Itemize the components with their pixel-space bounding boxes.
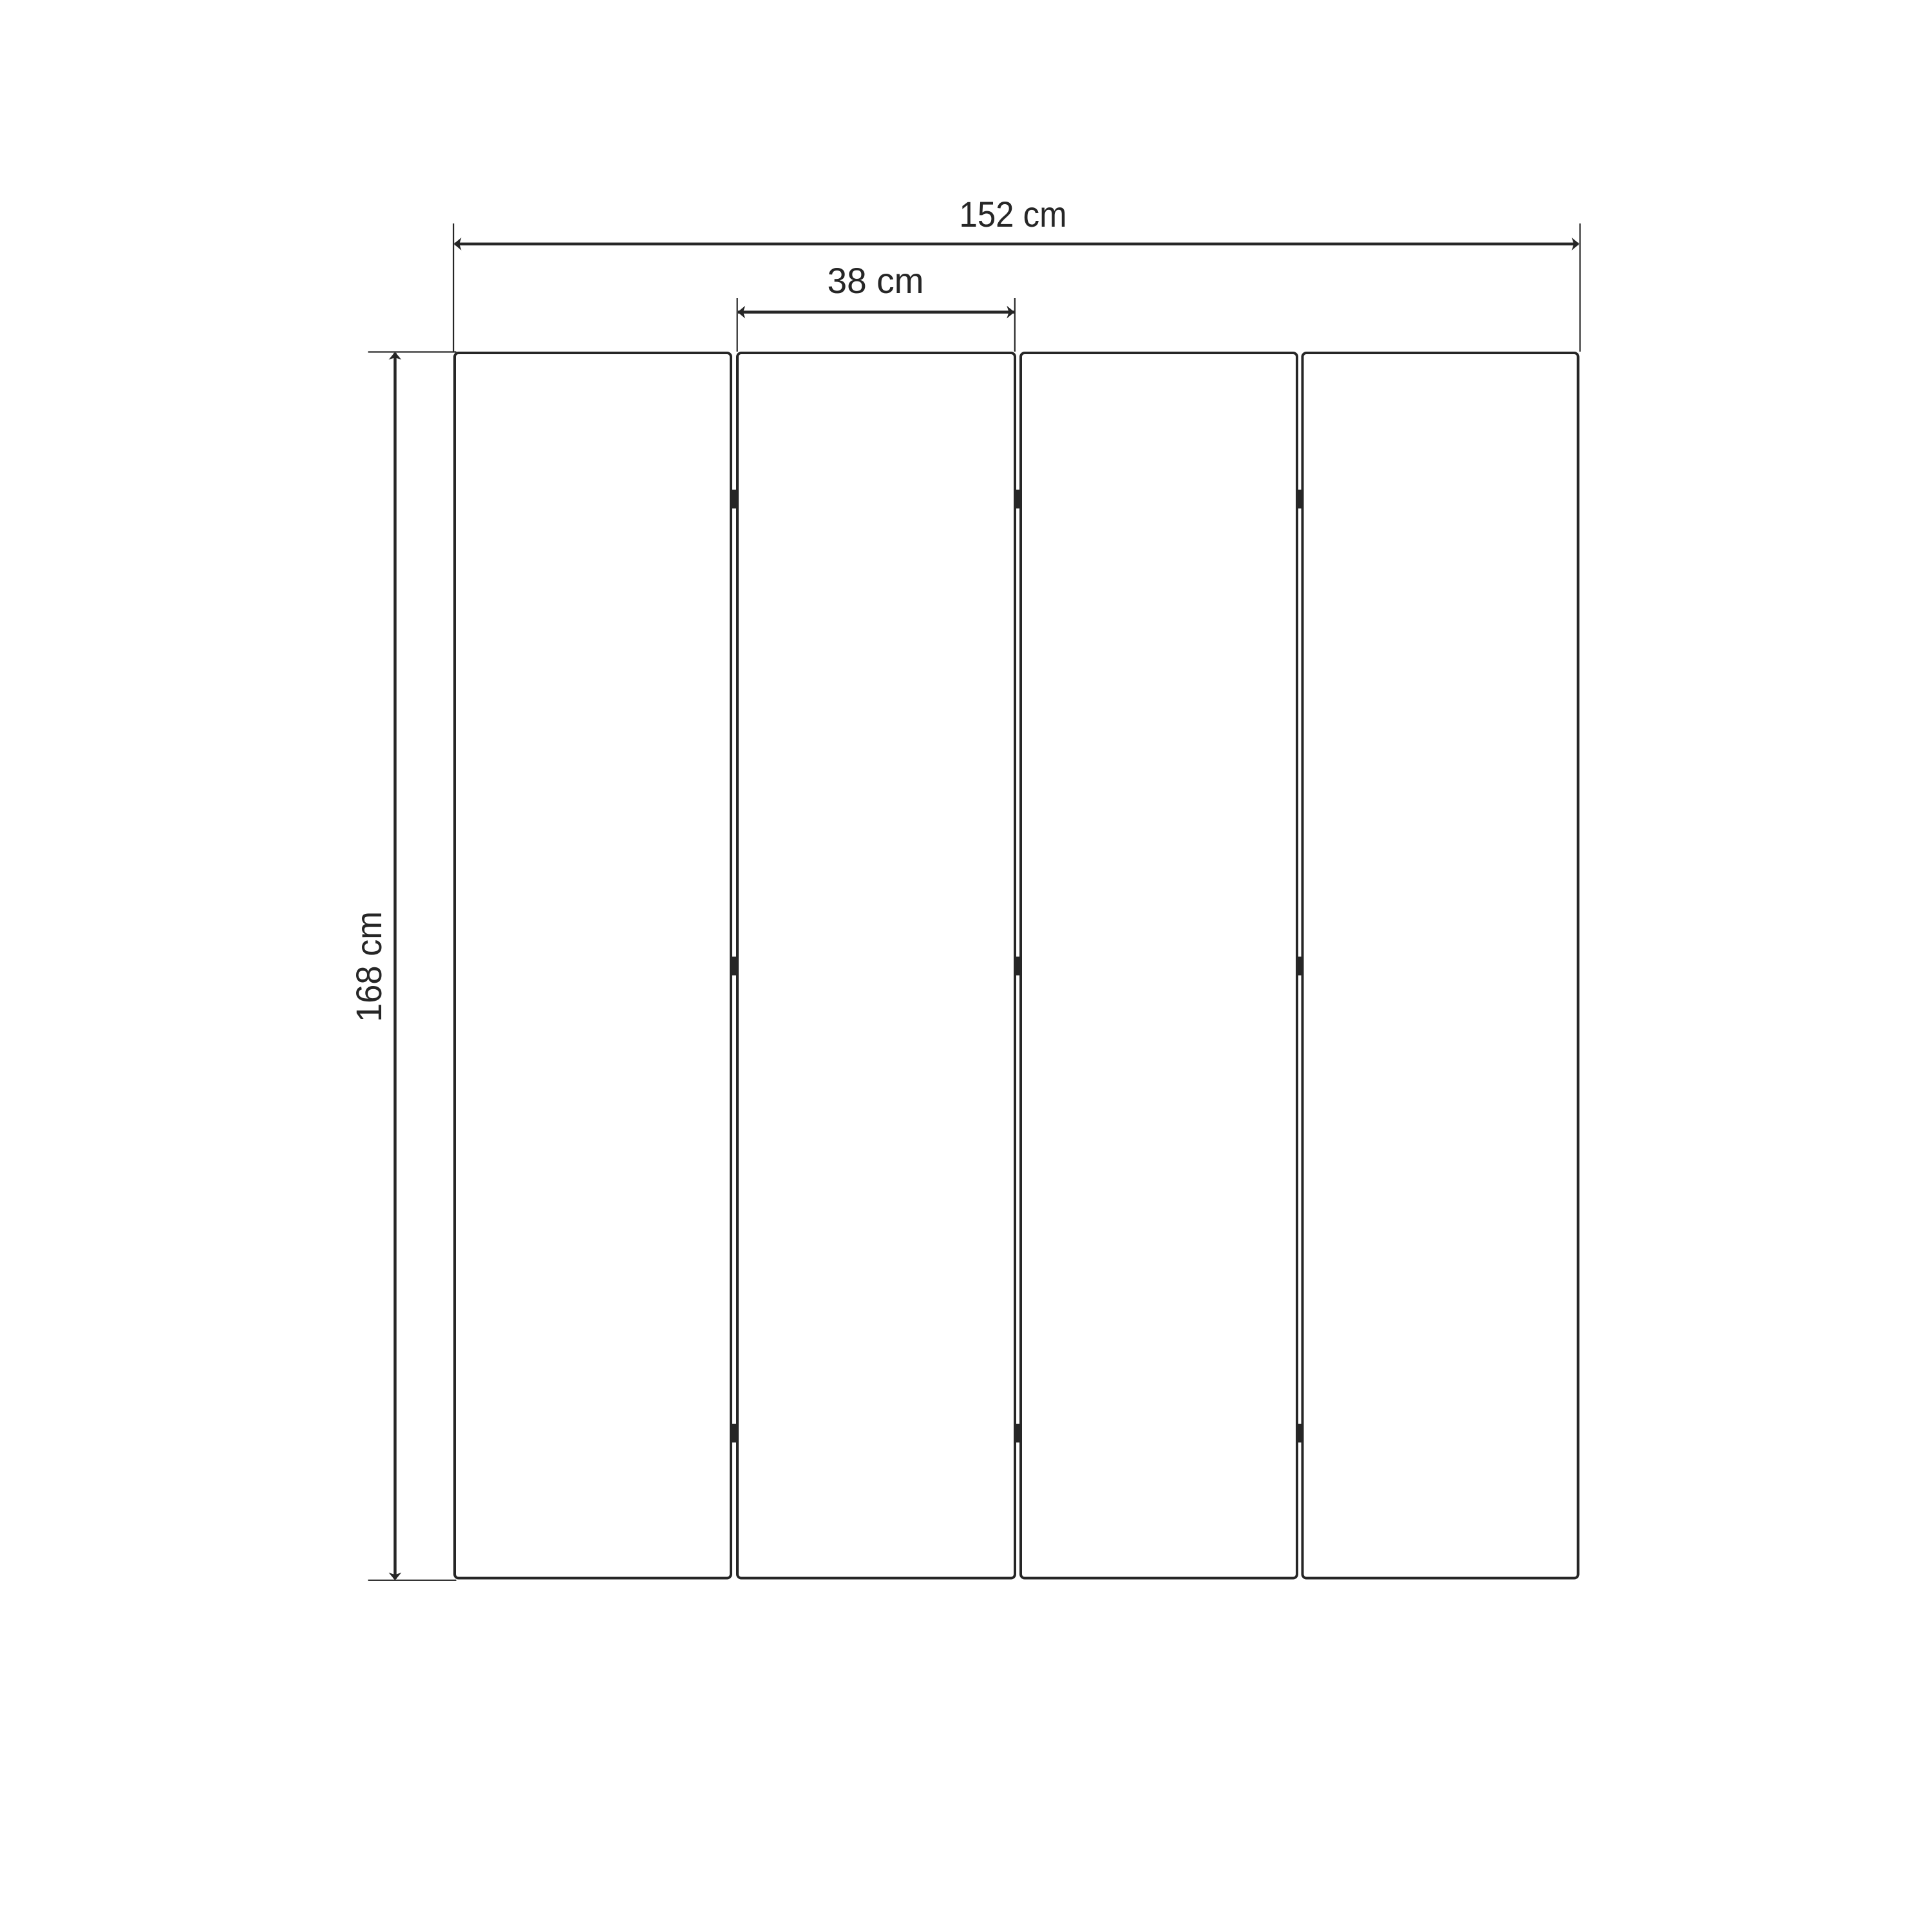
svg-text:168 cm: 168 cm [349,911,389,1022]
svg-text:152 cm: 152 cm [960,194,1067,234]
svg-text:38 cm: 38 cm [828,261,924,301]
